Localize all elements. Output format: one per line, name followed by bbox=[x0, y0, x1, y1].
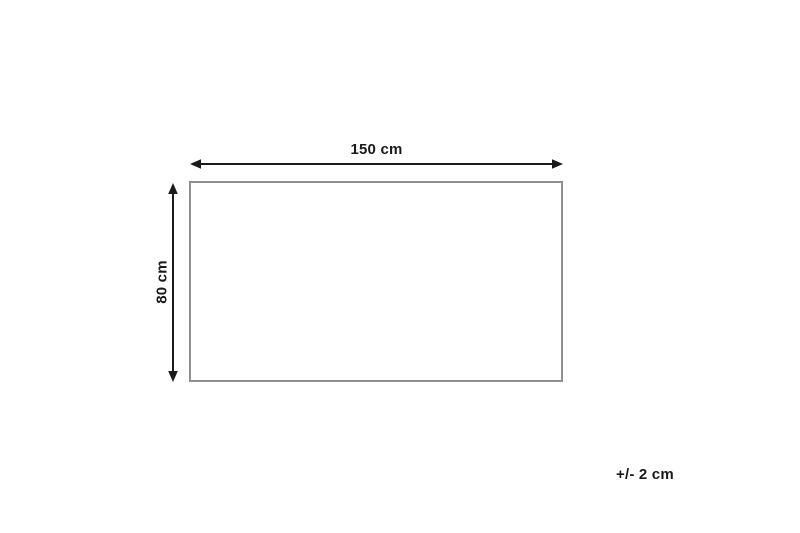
height-arrow-top-head-icon bbox=[168, 183, 178, 194]
product-outline-rectangle bbox=[189, 181, 563, 382]
tolerance-label: +/- 2 cm bbox=[616, 466, 674, 483]
height-arrow-bottom-head-icon bbox=[168, 371, 178, 382]
dimension-diagram: 150 cm 80 cm +/- 2 cm bbox=[0, 0, 800, 533]
width-arrow-right-head-icon bbox=[552, 159, 563, 169]
height-dimension-label: 80 cm bbox=[154, 260, 171, 304]
width-dimension-arrow bbox=[190, 157, 563, 171]
width-arrow-left-head-icon bbox=[190, 159, 201, 169]
width-dimension-label: 150 cm bbox=[190, 141, 563, 158]
